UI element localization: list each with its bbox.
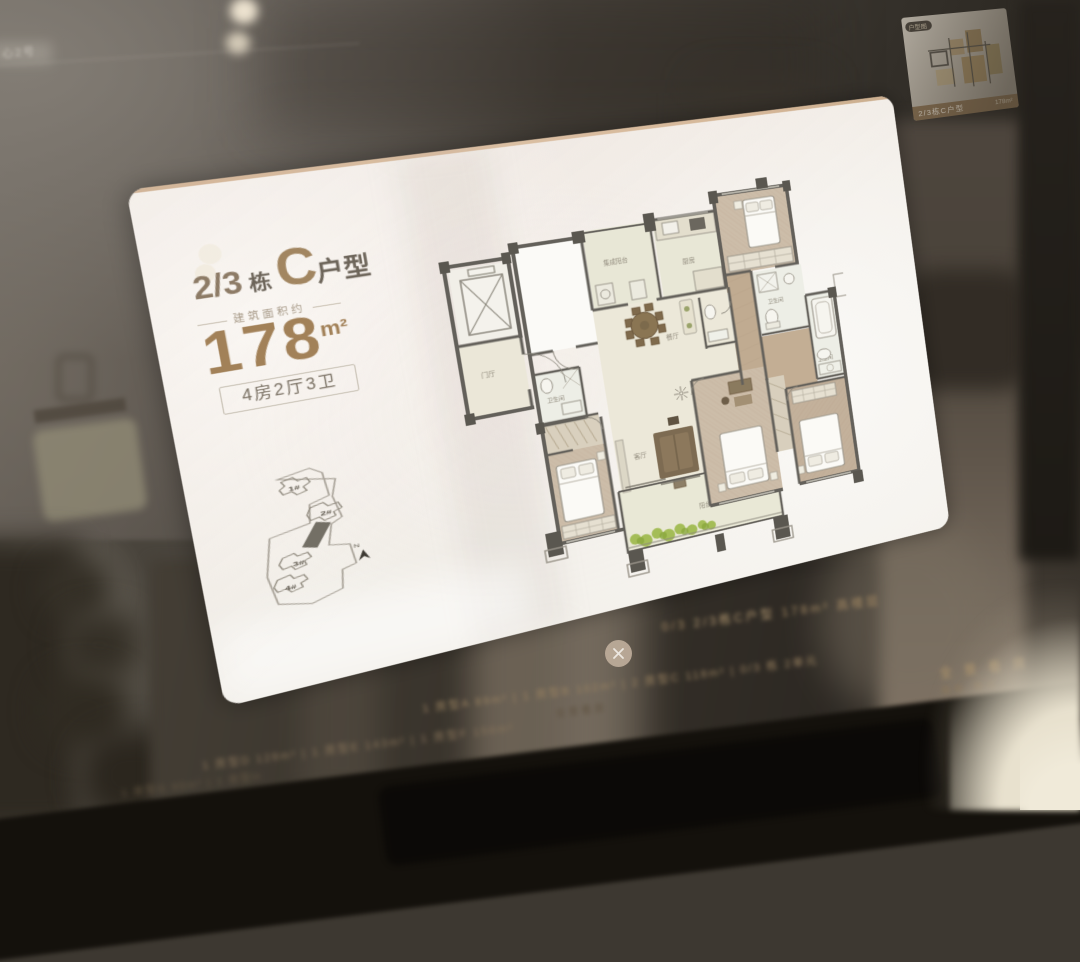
- svg-text:3#: 3#: [292, 559, 306, 568]
- svg-text:N: N: [353, 543, 360, 550]
- svg-text:2#: 2#: [320, 508, 333, 517]
- svg-text:4#: 4#: [284, 583, 298, 592]
- svg-text:1#: 1#: [288, 484, 302, 493]
